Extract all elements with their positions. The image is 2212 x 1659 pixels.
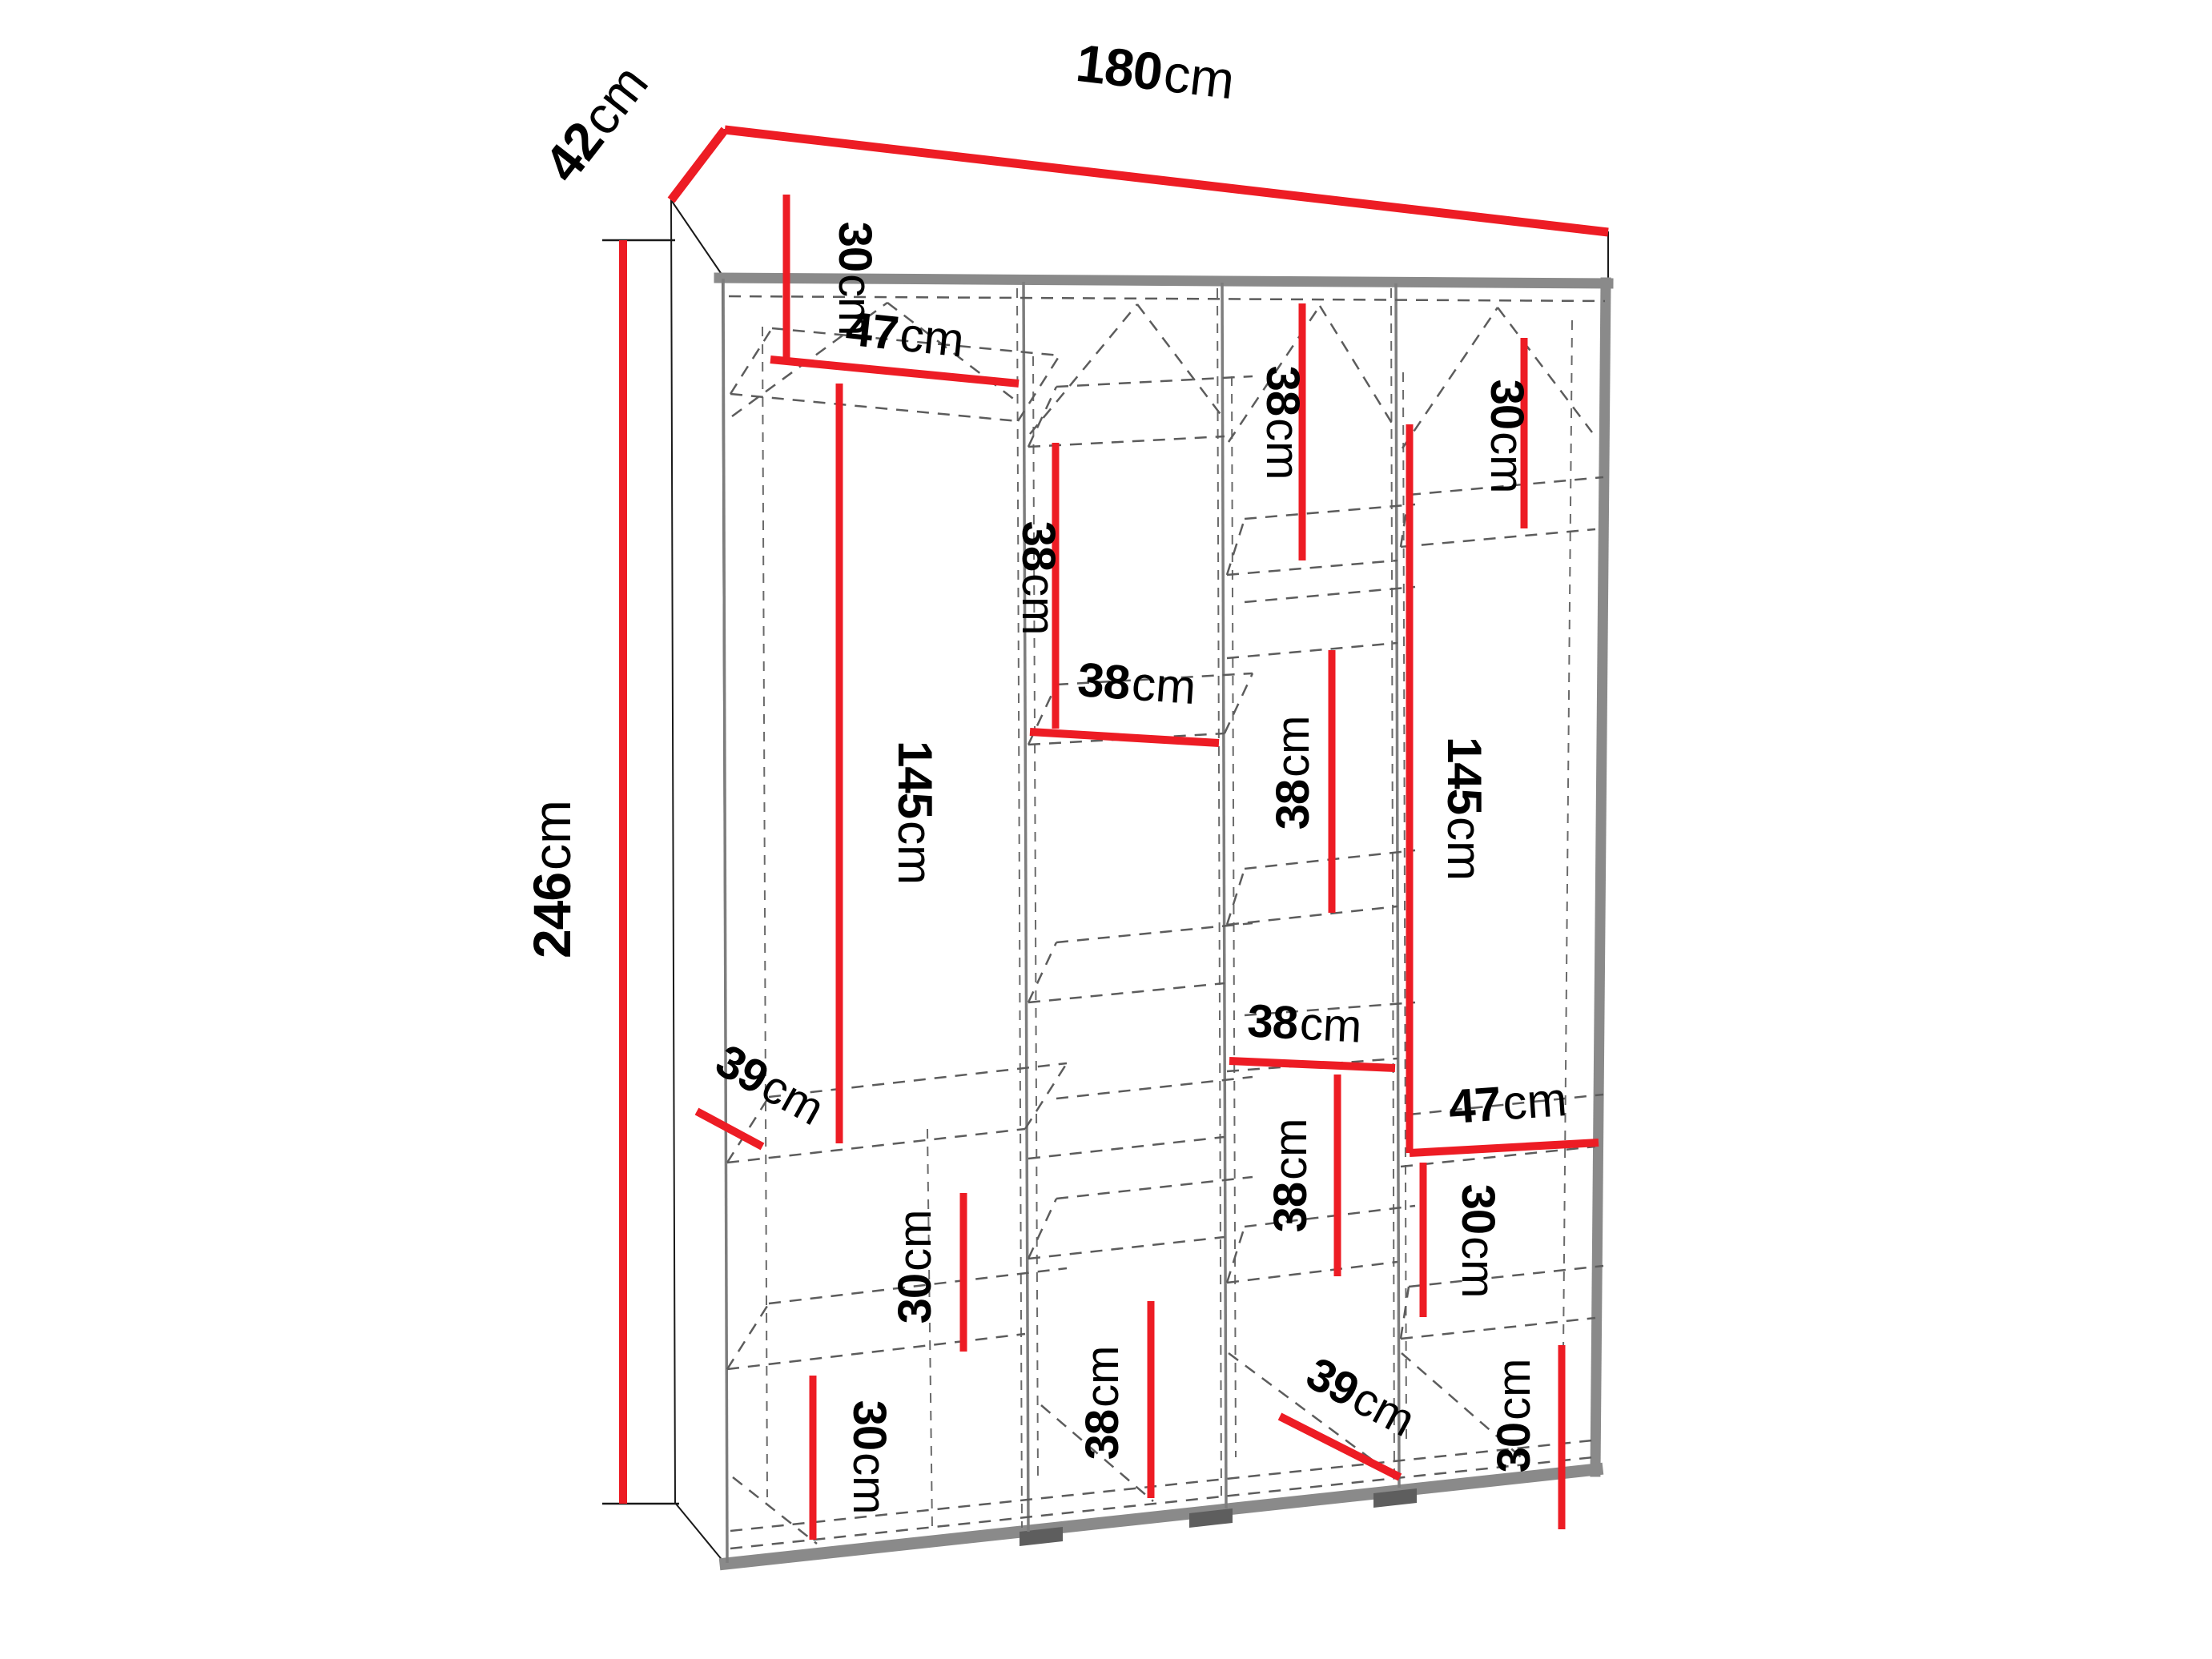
label-col1-47: 47cm: [843, 302, 967, 368]
label-col3-width-38: 38cm: [1246, 994, 1363, 1052]
label-col4-47: 47cm: [1447, 1072, 1569, 1134]
label-col2-low-38: 38cm: [1076, 1346, 1128, 1460]
label-col3-mid-38: 38cm: [1267, 716, 1319, 830]
shelf-line: [1227, 504, 1415, 1283]
divider-2: [1222, 283, 1226, 1508]
dim-line-col3-width-38: [1229, 1061, 1395, 1068]
label-col3-low-38: 38cm: [1265, 1119, 1317, 1233]
label-col1-145: 145cm: [888, 741, 942, 885]
label-col2-top-38: 38cm: [1012, 521, 1064, 636]
label-col4-top-30: 30cm: [1481, 380, 1533, 494]
diagram-canvas: 180cm 42cm 246cm 30cm 47cm 145cm 39cm 30…: [0, 0, 2212, 1659]
divider-panels: [762, 282, 1572, 1532]
divider-3: [1396, 283, 1399, 1488]
right-edge: [1595, 283, 1606, 1472]
label-total-width: 180cm: [1073, 33, 1237, 110]
dim-line-col4-47: [1410, 1143, 1599, 1153]
label-col4-145: 145cm: [1438, 737, 1491, 881]
label-col2-width-38: 38cm: [1076, 653, 1197, 714]
label-col4-mid-30: 30cm: [1452, 1184, 1504, 1299]
dim-line-col2-width-38: [1030, 732, 1219, 743]
label-total-height: 246cm: [522, 800, 581, 958]
label-col3-top-38: 38cm: [1257, 366, 1309, 480]
dim-line-col1-47: [770, 360, 1019, 384]
label-col1-low-30: 30cm: [843, 1400, 895, 1515]
divider-1: [1024, 282, 1028, 1532]
top-face: [671, 130, 1608, 282]
label-col4-low-30: 30cm: [1488, 1359, 1540, 1473]
label-total-depth: 42cm: [533, 54, 659, 193]
label-col1-mid-30: 30cm: [889, 1210, 941, 1324]
left-side-panel: [671, 200, 727, 1566]
dashed-structure: [727, 296, 1605, 1549]
